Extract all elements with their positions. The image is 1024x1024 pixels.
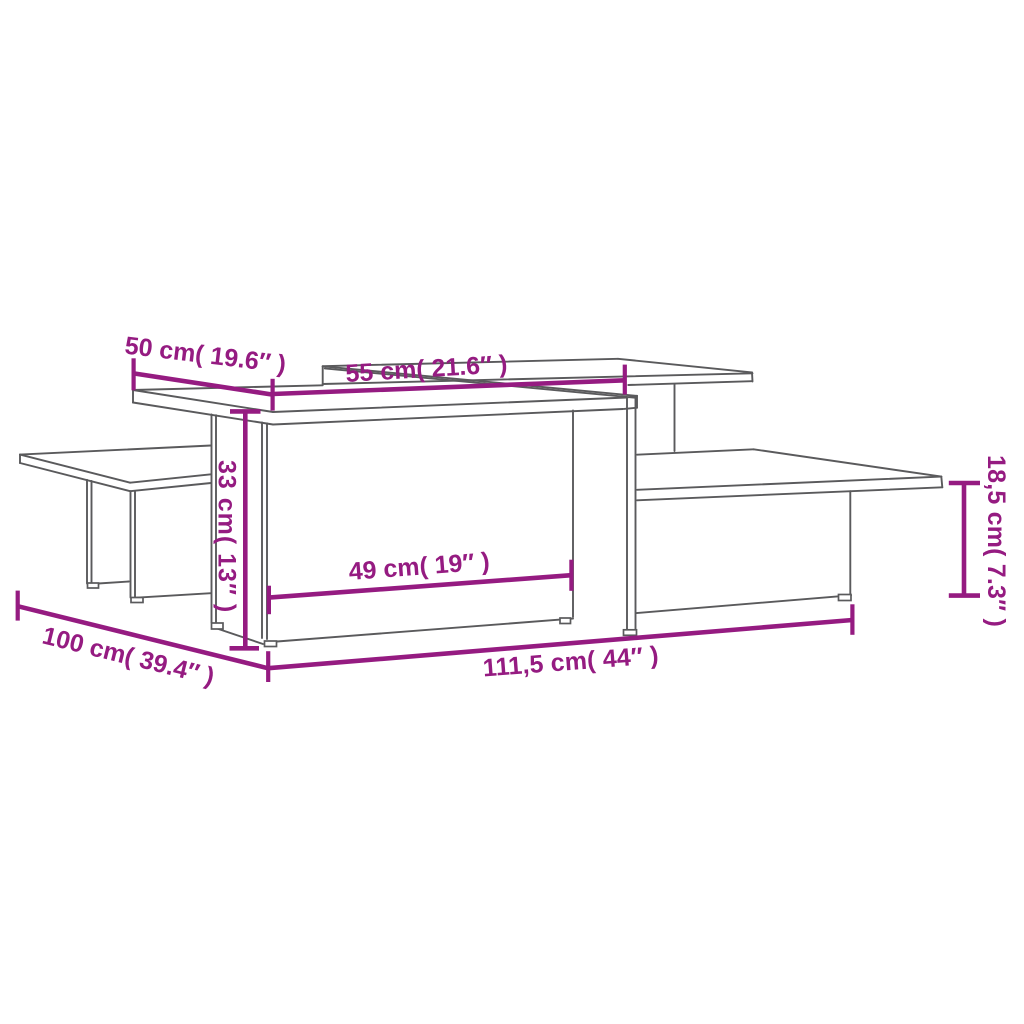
svg-text:33 cm( 13″ ): 33 cm( 13″ )	[213, 460, 241, 613]
svg-text:18,5 cm( 7.3″ ): 18,5 cm( 7.3″ )	[982, 455, 1010, 627]
